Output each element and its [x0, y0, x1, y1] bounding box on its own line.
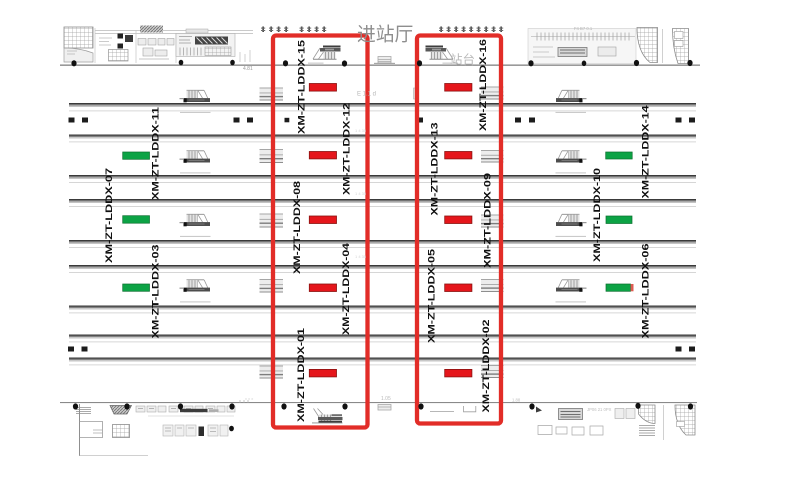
svg-text:XM-ZT-LDDX-08: XM-ZT-LDDX-08	[292, 181, 303, 274]
svg-text:XM-ZT-LDDX-10: XM-ZT-LDDX-10	[592, 168, 603, 262]
svg-text:XM-ZT-LDDX-15: XM-ZT-LDDX-15	[297, 39, 308, 134]
svg-text:1 4 35: 1 4 35	[355, 128, 367, 133]
svg-text:XM-ZT-LDDX-09: XM-ZT-LDDX-09	[483, 173, 494, 268]
svg-text:1.05: 1.05	[381, 396, 391, 402]
svg-text:x x x: x x x	[245, 396, 253, 401]
svg-text:XM-ZT-LDDX-16: XM-ZT-LDDX-16	[478, 39, 489, 131]
svg-text:1 4 35: 1 4 35	[355, 191, 367, 196]
svg-text:4.81: 4.81	[243, 66, 253, 72]
svg-text:XM-ZT-LDDX-14: XM-ZT-LDDX-14	[641, 105, 652, 199]
svg-text:XM-ZT-LDDX-06: XM-ZT-LDDX-06	[641, 244, 652, 339]
svg-text:进站厅: 进站厅	[357, 24, 413, 45]
svg-text:XM-ZT-LDDX-02: XM-ZT-LDDX-02	[481, 320, 492, 413]
svg-text:1.88: 1.88	[512, 398, 521, 403]
svg-text:站台: 站台	[450, 52, 475, 67]
svg-text:JP06 21 0PX: JP06 21 0PX	[587, 407, 612, 412]
svg-text:XM-ZT-LDDX-01: XM-ZT-LDDX-01	[296, 327, 307, 422]
svg-text:XM-ZT-LDDX-03: XM-ZT-LDDX-03	[151, 245, 162, 339]
svg-text:E 1.1 d: E 1.1 d	[357, 92, 376, 98]
svg-text:XM-ZT-LDDX-13: XM-ZT-LDDX-13	[430, 123, 441, 216]
svg-text:XM-ZT-LDDX-11: XM-ZT-LDDX-11	[151, 106, 162, 200]
svg-text:1 4 35: 1 4 35	[355, 254, 367, 259]
svg-text:XM-ZT-LDDX-05: XM-ZT-LDDX-05	[427, 248, 438, 343]
svg-text:XM-ZT-LDDX-07: XM-ZT-LDDX-07	[104, 168, 115, 263]
svg-text:XM-ZT-LDDX-04: XM-ZT-LDDX-04	[341, 242, 352, 335]
svg-text:F4 B7 0.1: F4 B7 0.1	[574, 26, 593, 31]
svg-text:XM-ZT-LDDX-12: XM-ZT-LDDX-12	[342, 103, 353, 195]
